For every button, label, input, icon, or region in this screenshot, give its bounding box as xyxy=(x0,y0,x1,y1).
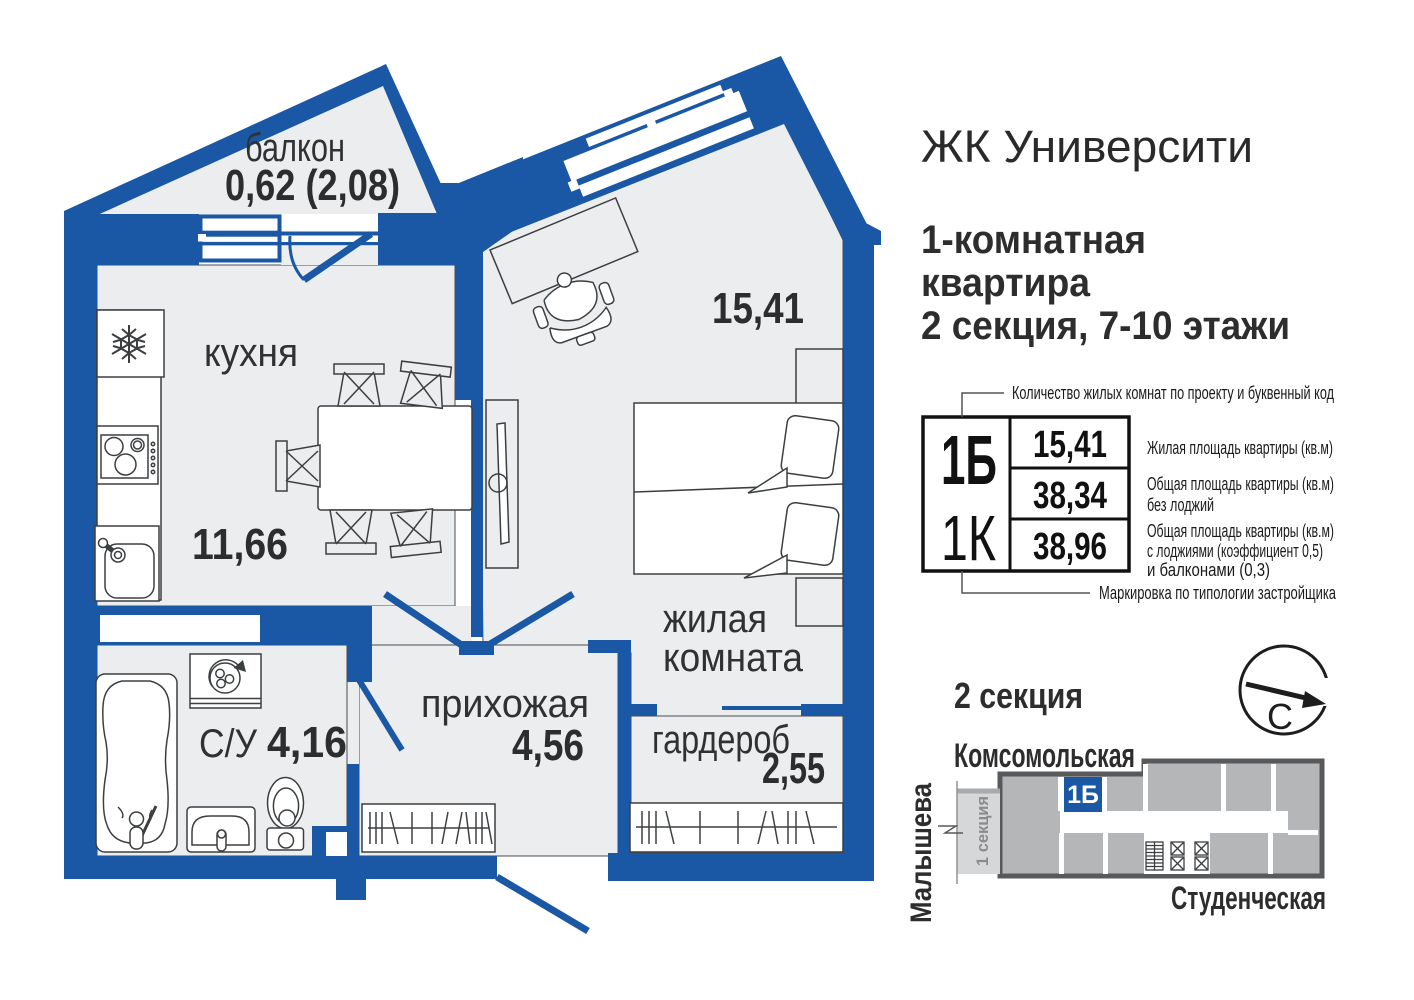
svg-text:15,41: 15,41 xyxy=(1033,424,1107,466)
svg-text:комната: комната xyxy=(663,636,804,680)
svg-text:38,96: 38,96 xyxy=(1033,526,1107,568)
svg-text:Маркировка по типологии застро: Маркировка по типологии застройщика xyxy=(1099,583,1337,603)
svg-text:С: С xyxy=(1267,696,1293,737)
svg-text:2 секция: 2 секция xyxy=(954,675,1083,716)
svg-text:1-комнатная: 1-комнатная xyxy=(921,218,1146,262)
svg-text:Жилая площадь квартиры (кв.м): Жилая площадь квартиры (кв.м) xyxy=(1147,438,1333,458)
svg-text:2,55: 2,55 xyxy=(762,744,825,793)
svg-text:без лоджий: без лоджий xyxy=(1147,495,1214,515)
svg-text:1 секция: 1 секция xyxy=(973,796,992,866)
svg-text:и балконами (0,3): и балконами (0,3) xyxy=(1147,560,1270,580)
svg-text:1К: 1К xyxy=(941,502,996,574)
svg-text:4,16: 4,16 xyxy=(267,718,347,767)
svg-text:38,34: 38,34 xyxy=(1033,475,1107,517)
svg-text:прихожая: прихожая xyxy=(421,682,589,726)
svg-text:11,66: 11,66 xyxy=(192,520,288,569)
svg-text:с лоджиями (коэффициент 0,5): с лоджиями (коэффициент 0,5) xyxy=(1147,541,1323,561)
svg-text:Студенческая: Студенческая xyxy=(1171,880,1326,916)
svg-text:С/У: С/У xyxy=(199,722,258,766)
svg-text:1Б: 1Б xyxy=(1067,781,1099,809)
svg-text:Общая площадь квартиры (кв.м): Общая площадь квартиры (кв.м) xyxy=(1147,474,1334,494)
svg-text:ЖК Университи: ЖК Университи xyxy=(921,121,1253,172)
svg-text:Общая площадь квартиры (кв.м): Общая площадь квартиры (кв.м) xyxy=(1147,521,1334,541)
svg-text:кухня: кухня xyxy=(204,331,298,375)
svg-text:15,41: 15,41 xyxy=(712,284,804,333)
svg-text:квартира: квартира xyxy=(921,261,1091,305)
svg-text:2 секция, 7-10 этажи: 2 секция, 7-10 этажи xyxy=(921,304,1290,348)
svg-text:4,56: 4,56 xyxy=(512,721,584,770)
svg-text:Малышева: Малышева xyxy=(905,783,938,923)
svg-text:1Б: 1Б xyxy=(941,421,997,499)
svg-text:жилая: жилая xyxy=(663,597,767,641)
svg-text:0,62 (2,08): 0,62 (2,08) xyxy=(225,161,400,210)
svg-text:Количество жилых комнат по про: Количество жилых комнат по проекту и бук… xyxy=(1012,383,1334,403)
svg-text:Комсомольская: Комсомольская xyxy=(954,737,1135,775)
